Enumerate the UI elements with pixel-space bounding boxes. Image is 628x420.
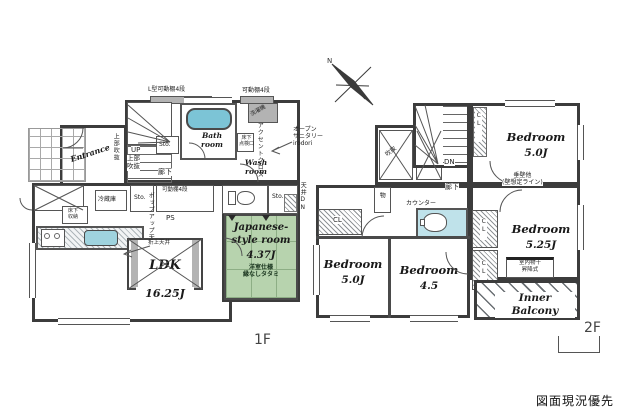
f1-jp-note-label: 洋室仕様 縁なしタタミ xyxy=(229,264,293,278)
f2-bedroom-mid-size: 4.5 xyxy=(396,280,462,293)
f2-wall-vertical xyxy=(388,238,391,318)
f1-shelf-mid-label: 可動棚4段 xyxy=(162,187,188,194)
f2-floor-label: 2F xyxy=(584,320,601,337)
f2-cl-mid-upper-label: CL xyxy=(480,218,487,240)
f1-sto-stairs-label: Sto. xyxy=(159,141,171,148)
f2-cl-top-label: CL xyxy=(475,112,482,142)
f2-wall-note-label: 垂壁他 (壁想定ライン) xyxy=(502,172,543,186)
f2-counter-label: カウンター xyxy=(406,200,436,207)
f1-void-stairs-label: 上部 吹抜 xyxy=(127,155,140,171)
f2-bedroom-right-name: Bedroom xyxy=(505,222,577,236)
f1-ldk-band-right xyxy=(192,240,199,288)
f1-ps-label: PS xyxy=(166,214,175,222)
f2-bedroom-right-size: 5.25J xyxy=(505,239,577,252)
f2-hall-label: 廊下 xyxy=(445,183,459,191)
f2-void-a-box xyxy=(379,130,413,180)
f2-drying-label: 室内物干 昇降式 xyxy=(508,260,552,273)
f1-vent-mark-2 xyxy=(262,215,270,221)
f1-ldk-label: LDK xyxy=(140,258,190,274)
f1-vent-mark-1 xyxy=(228,215,236,221)
f1-sto-b-label: Sto. xyxy=(272,193,284,200)
north-arrow-icon xyxy=(332,64,373,105)
f2-bedroom-left-size: 5.0J xyxy=(320,274,386,287)
f2-step-outline xyxy=(558,336,600,353)
f1-open-sanitary-label: オープン サニタリー irodori xyxy=(293,126,323,148)
f2-bedroom-top-size: 5.0J xyxy=(500,147,572,160)
f2-inner-balcony-label: Inner Balcony xyxy=(495,292,575,318)
f2-cl-mid-lower-label: CL xyxy=(480,260,487,282)
f2-window-top xyxy=(505,100,555,107)
f2-washbasin-bowl xyxy=(423,213,447,232)
f1-ldk-size-label: 16.25J xyxy=(136,287,194,301)
f1-bath-label: Bath room xyxy=(192,131,232,150)
f1-sink xyxy=(84,230,118,246)
f1-floor-storage-label: 床下 収納 xyxy=(68,208,78,220)
footer-note: 図面現況優先 xyxy=(536,394,614,408)
f2-window-right-top xyxy=(577,125,584,160)
f2-window-bottom-left xyxy=(330,315,370,322)
f2-window-left xyxy=(313,245,320,295)
f1-void-entrance-label: 上部吹抜 xyxy=(112,133,119,189)
ldk-side-door-arc xyxy=(20,198,32,210)
f1-window-bath xyxy=(184,97,232,104)
f1-shelf-r-label: 可動棚4段 xyxy=(242,87,270,94)
f1-bathtub xyxy=(186,108,232,130)
f1-shelf-l-label: L型可動棚4段 xyxy=(148,86,185,93)
f1-fridge-label: 冷蔵庫 xyxy=(98,196,116,203)
f1-ldk-band-left xyxy=(131,240,138,288)
f1-window-bottom xyxy=(58,318,130,325)
f2-bedroom-top-name: Bedroom xyxy=(500,130,572,144)
f1-toilet-tank xyxy=(228,191,236,205)
f1-raised-ceiling-label: 折上天井 xyxy=(148,240,170,247)
f2-washbasin-faucet xyxy=(420,219,425,226)
f2-dn-label: DN xyxy=(444,158,455,166)
f2-bedroom-left-name: Bedroom xyxy=(320,257,386,271)
f1-jp-name-label: Japanese- style room xyxy=(226,222,296,247)
f1-hall-label: 廊下 xyxy=(158,168,172,176)
f2-window-right-mid xyxy=(577,205,584,250)
f2-stairs-treads xyxy=(443,106,467,164)
f2-mono-closet-label: 物 xyxy=(378,192,385,208)
f1-toilet-bowl xyxy=(237,191,255,205)
f1-jp-size-label: 4.37J xyxy=(226,250,296,263)
f1-stove-burner-2 xyxy=(54,233,60,239)
f1-inspection-label: 床下 点検口 xyxy=(239,135,254,147)
f1-floor-label: 1F xyxy=(254,332,271,349)
f2-cl-left-label: CL xyxy=(333,216,342,224)
f1-window-left xyxy=(29,243,36,298)
f1-corner-hatch xyxy=(284,194,297,212)
f2-window-bottom-mid xyxy=(410,315,458,322)
f2-left-block xyxy=(316,185,470,318)
f1-stove-burner-1 xyxy=(44,233,50,239)
f1-ceiling-dn-label: 天井DN xyxy=(299,182,306,220)
floor-plan-page: L型可動棚4段 可動棚4段 UP 上部 吹抜 Sto. Bath room Wa… xyxy=(0,0,628,420)
f2-north-label: N xyxy=(327,57,332,65)
f1-accent-label: アクセントクロス xyxy=(256,122,263,184)
f2-wall-horizontal xyxy=(316,236,470,239)
f2-bedroom-mid-name: Bedroom xyxy=(396,263,462,277)
f1-sto-a-label: Sto. xyxy=(134,194,146,201)
